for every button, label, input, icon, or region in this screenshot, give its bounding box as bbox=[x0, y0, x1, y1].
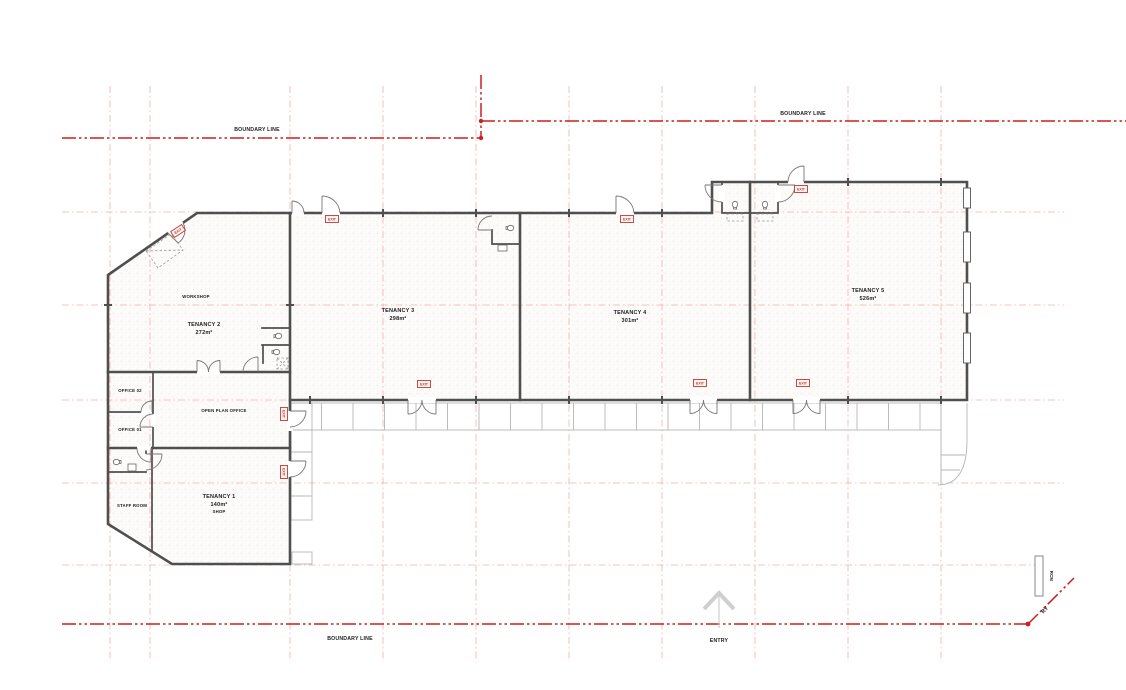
canopy-corner bbox=[938, 403, 967, 485]
staff-room-label: STAFF ROOM bbox=[117, 503, 147, 508]
svg-text:EXIT: EXIT bbox=[623, 217, 632, 221]
floor-plan-canvas: EXIT EXIT EXIT EXIT EXIT EXIT EXIT EXIT … bbox=[0, 0, 1126, 690]
tenancy1-type: SHOP bbox=[213, 509, 226, 514]
rcm-marker: RCM RY bbox=[1035, 556, 1054, 615]
svg-text:EXIT: EXIT bbox=[282, 410, 286, 419]
exit-sign: EXIT bbox=[795, 186, 808, 193]
tenancy5-area: 526m² bbox=[860, 295, 877, 302]
exit-sign: EXIT bbox=[281, 408, 288, 421]
office01-label: OFFICE 01 bbox=[118, 427, 142, 432]
canopy-side-strip bbox=[291, 403, 312, 520]
boundary-label-top-left: BOUNDARY LINE bbox=[234, 127, 280, 133]
tenancy1-area: 140m² bbox=[211, 501, 228, 508]
tenancy4-area: 301m² bbox=[622, 317, 639, 324]
diagonal-boundary-label: RY bbox=[1040, 605, 1050, 615]
entry-arrow-icon bbox=[704, 592, 734, 628]
exit-sign: EXIT bbox=[694, 380, 707, 387]
exit-sign: EXIT bbox=[797, 380, 810, 387]
svg-text:EXIT: EXIT bbox=[797, 187, 806, 191]
exit-sign: EXIT bbox=[281, 466, 288, 479]
entry-label: ENTRY bbox=[710, 638, 729, 644]
canopy-awning bbox=[290, 403, 967, 564]
office02-label: OFFICE 02 bbox=[118, 388, 142, 393]
exit-sign: EXIT bbox=[418, 381, 431, 388]
tenancy3-area: 298m² bbox=[390, 315, 407, 322]
open-plan-office-label: OPEN PLAN OFFICE bbox=[201, 408, 246, 413]
svg-text:EXIT: EXIT bbox=[328, 217, 337, 221]
boundary-label-top-right: BOUNDARY LINE bbox=[780, 111, 826, 117]
tenancy3-label: TENANCY 3 bbox=[382, 308, 415, 314]
tenancy1-label: TENANCY 1 bbox=[203, 494, 236, 500]
tenancy2-area: 272m² bbox=[196, 329, 213, 336]
tenancy5-label: TENANCY 5 bbox=[852, 288, 885, 294]
boundary-label-bottom: BOUNDARY LINE bbox=[327, 636, 373, 642]
svg-text:EXIT: EXIT bbox=[282, 468, 286, 477]
workshop-label: WORKSHOP bbox=[182, 294, 209, 299]
floor-plan-svg: EXIT EXIT EXIT EXIT EXIT EXIT EXIT EXIT … bbox=[0, 0, 1126, 690]
exit-sign: EXIT bbox=[621, 216, 634, 223]
rcm-label: RCM bbox=[1049, 571, 1054, 582]
svg-text:EXIT: EXIT bbox=[696, 381, 705, 385]
exit-sign: EXIT bbox=[326, 216, 339, 223]
tenancy4-label: TENANCY 4 bbox=[614, 310, 648, 316]
tenancy2-label: TENANCY 2 bbox=[188, 322, 221, 328]
svg-text:EXIT: EXIT bbox=[799, 381, 808, 385]
svg-text:EXIT: EXIT bbox=[420, 382, 429, 386]
